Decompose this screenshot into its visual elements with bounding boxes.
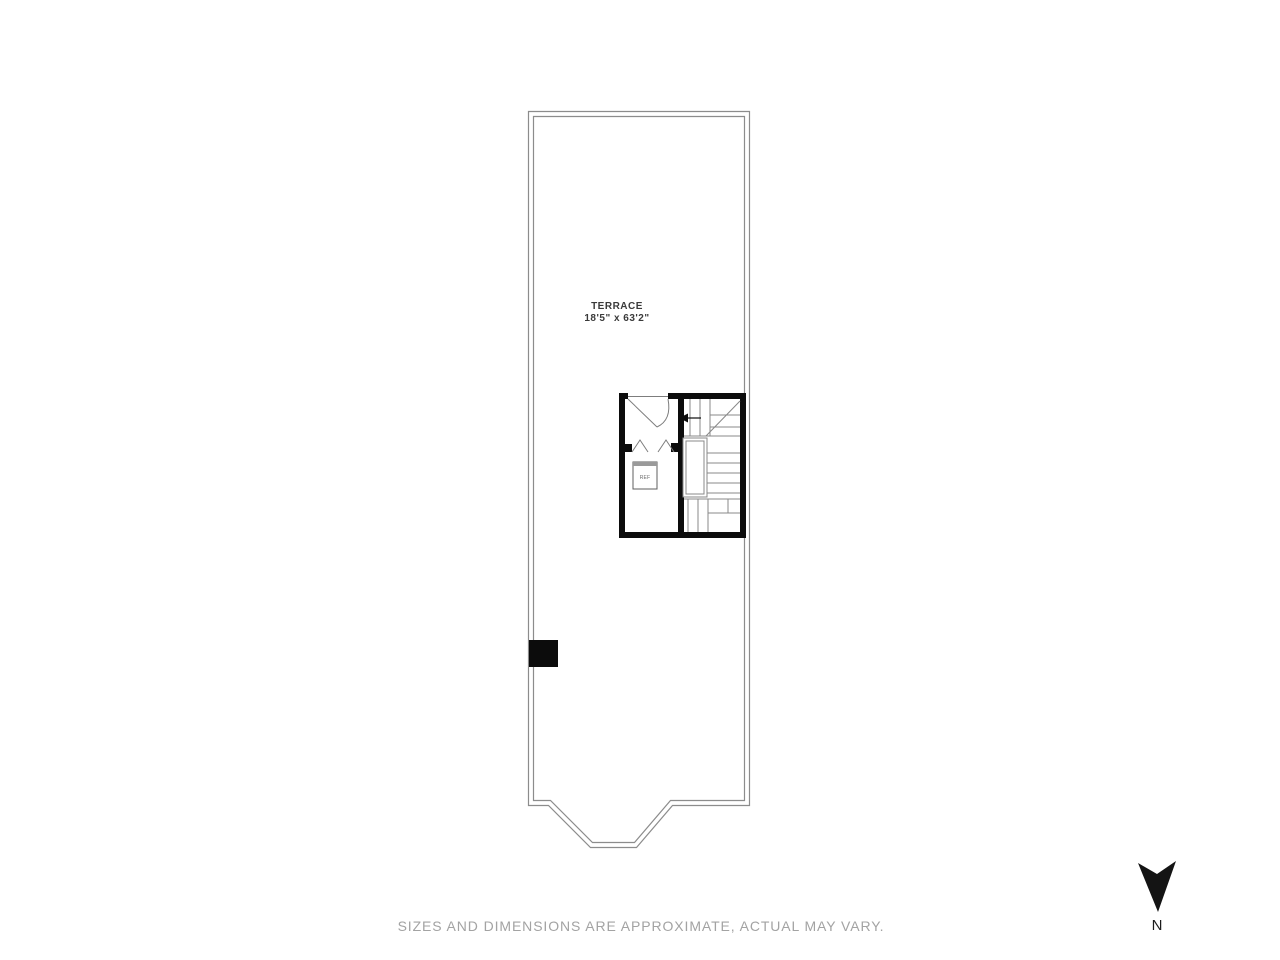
room-dimensions-label: 18'5" x 63'2" <box>584 313 649 324</box>
stair-well-outer <box>683 438 707 497</box>
room-label-group: TERRACE 18'5" x 63'2" <box>584 301 649 324</box>
bifold-left-wall-stub <box>625 444 632 452</box>
refrigerator: REF <box>633 462 657 489</box>
north-label: N <box>1152 917 1163 934</box>
bulkhead-bottom-wall <box>619 532 746 538</box>
disclaimer-text: SIZES AND DIMENSIONS ARE APPROXIMATE, AC… <box>398 918 885 934</box>
bulkhead-left-wall <box>619 393 625 538</box>
refrigerator-label: REF <box>640 475 651 481</box>
bulkhead-right-wall <box>740 393 746 538</box>
floor-plan-page: TERRACE 18'5" x 63'2" <box>0 0 1280 960</box>
refrigerator-top-band <box>633 462 657 466</box>
room-name-label: TERRACE <box>591 301 643 312</box>
bifold-right-wall-stub <box>671 443 678 452</box>
chimney-block <box>529 640 558 667</box>
north-arrow-icon <box>1138 861 1176 912</box>
north-arrow: N <box>1138 861 1176 934</box>
floor-plan-drawing: TERRACE 18'5" x 63'2" <box>0 0 1280 960</box>
